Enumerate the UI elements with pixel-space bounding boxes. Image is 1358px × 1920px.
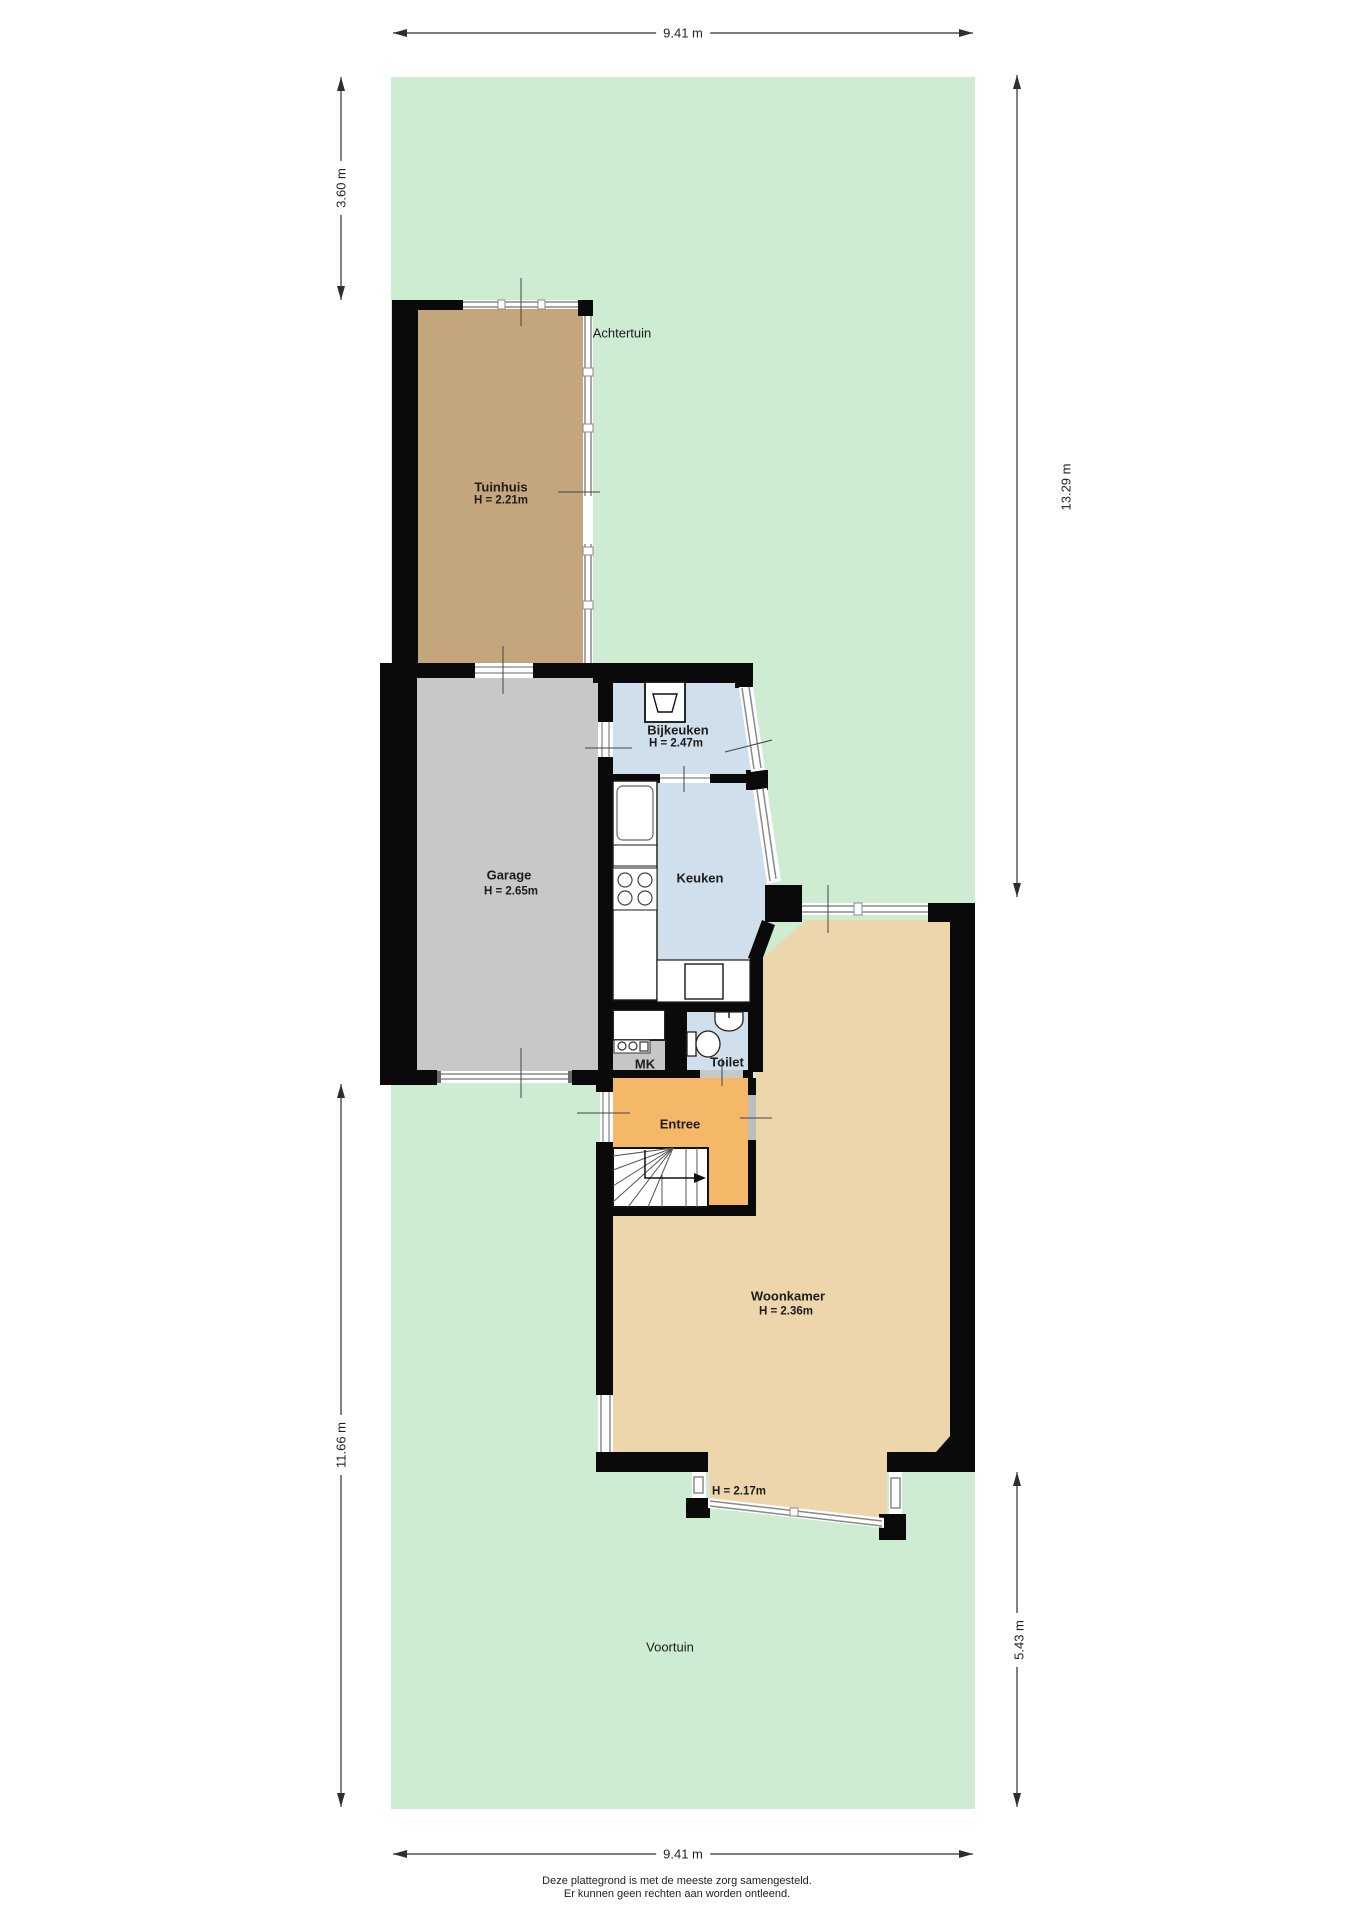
mk-toilet-wall [665,1010,687,1072]
house-left-wall-a [596,1078,613,1092]
disclaimer-line-1: Deze plattegrond is met de meeste zorg s… [542,1875,812,1888]
bijkeuken-bottom-wall-b [710,774,750,783]
cooktop-icon [613,868,657,910]
meter-icons [614,1040,650,1053]
garage-height-label: H = 2.65m [484,886,538,898]
facade-mid-post [746,770,768,790]
entree-label: Entree [660,1118,700,1131]
woonkamer-bottom-left-wall [596,1452,708,1472]
appliance-icon [685,964,723,999]
garage-bijkeuken-door [598,722,613,757]
woonkamer-height-label: H = 2.36m [759,1306,813,1318]
house-left-wall-b [596,1142,613,1395]
entree-right-wall-a [748,1078,756,1095]
toilet-label: Toilet [710,1056,744,1069]
toilet-right-wall [748,1012,763,1072]
washbasin-icon [715,1012,743,1031]
bijkeuken-corner-wall [735,663,753,688]
toilet-icon [687,1031,720,1057]
garage-label: Garage [487,869,532,882]
keuken-woonkamer-wall [750,955,763,1005]
cupboard [613,1010,665,1040]
entree-right-wall-b [748,1140,756,1212]
woonkamer-top-right-corner [928,903,975,922]
front-door [600,1092,613,1142]
floorplan-drawing [0,0,1358,1920]
bay-height-label: H = 2.17m [712,1486,766,1498]
woonkamer-top-left-corner [765,885,802,922]
dim-label-bottom: 9.41 m [656,1848,710,1861]
bijkeuken-top-wall [593,663,753,683]
sink-icon [617,786,653,840]
entree-top-wall-b [743,1070,753,1078]
garage-front-window [437,1071,572,1083]
mk-label: MK [635,1058,655,1071]
dim-label-left-lower: 11.66 m [335,1415,348,1475]
garage-right-wall-b [598,757,613,1072]
floorplan-page: 9.41 m 9.41 m 3.60 m 11.66 m 13.29 m 5.4… [0,0,1358,1920]
tuinhuis-corner-wall [578,300,593,316]
tuinhuis-garage-door [475,663,533,678]
woonkamer-bottom-right-wall [887,1452,975,1472]
bijkeuken-height-label: H = 2.47m [649,738,703,750]
dim-label-right-lower: 5.43 m [1013,1613,1026,1667]
woonkamer-rear-window [802,903,928,915]
tuinhuis-door [583,496,593,544]
woonkamer-right-wall [950,903,975,1452]
kitchen-counter [613,781,657,1000]
garage-left-wall [380,663,417,1085]
achtertuin-label: Achtertuin [593,327,652,340]
tuinhuis-height-label: H = 2.21m [474,495,528,507]
tuinhuis-label: Tuinhuis [474,481,527,494]
voortuin-label: Voortuin [646,1641,694,1654]
garage-front-wall-a [380,1070,437,1085]
tuinhuis-left-wall [392,300,418,673]
dim-label-left-upper: 3.60 m [335,161,348,215]
keuken-label: Keuken [677,872,724,885]
entree-top-wall-a [613,1070,700,1078]
bijkeuken-label: Bijkeuken [647,724,708,737]
bay-left-post [686,1498,710,1518]
tuinhuis-top-wall [392,300,463,310]
woonkamer-label: Woonkamer [751,1290,825,1303]
dim-label-right-upper: 13.29 m [1060,457,1073,518]
tuinhuis-garage-wall-b [533,663,593,678]
washing-machine-icon [645,682,685,722]
disclaimer-line-2: Er kunnen geen rechten aan worden ontlee… [564,1888,790,1901]
dim-label-top: 9.41 m [656,27,710,40]
stairs-icon [613,1148,708,1207]
